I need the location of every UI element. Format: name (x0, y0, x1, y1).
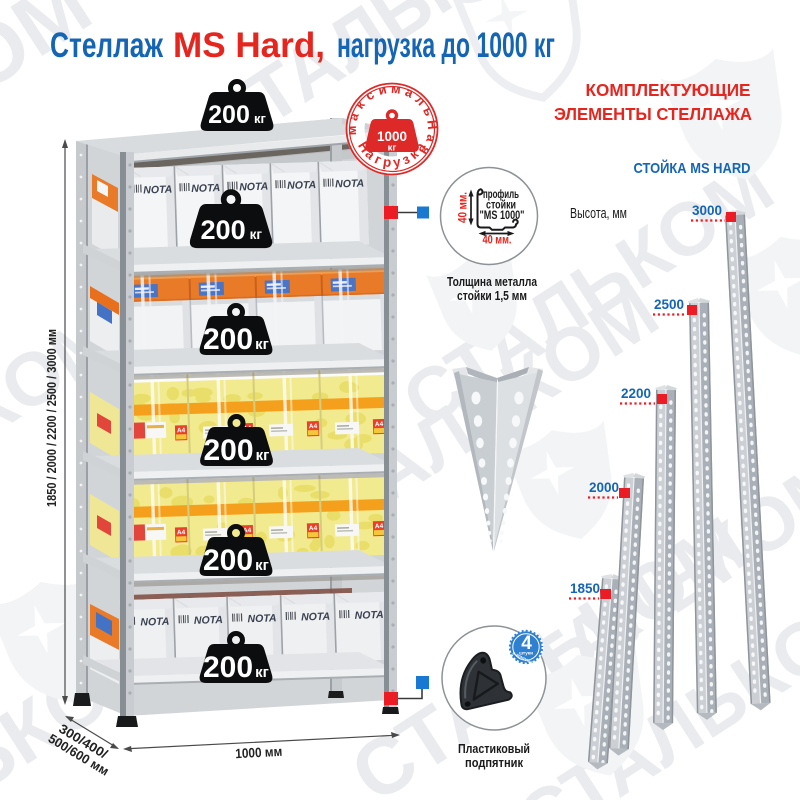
svg-text:NOTA: NOTA (194, 614, 223, 627)
svg-text:2000: 2000 (589, 480, 619, 495)
svg-text:Пластиковый: Пластиковый (458, 741, 530, 756)
svg-text:NOTA: NOTA (191, 182, 220, 195)
svg-text:NOTA: NOTA (247, 612, 276, 625)
svg-text:NOTA: NOTA (355, 609, 384, 622)
svg-text:СТОЙКА MS HARD: СТОЙКА MS HARD (634, 159, 751, 177)
svg-text:Стеллаж: Стеллаж (50, 26, 164, 65)
svg-text:1850 / 2000 / 2200 / 2500 / 30: 1850 / 2000 / 2200 / 2500 / 3000 мм (44, 329, 59, 507)
svg-text:200: 200 (200, 214, 245, 245)
svg-text:стойки 1,5 мм: стойки 1,5 мм (457, 288, 527, 303)
svg-text:кг: кг (255, 336, 269, 353)
svg-text:Высота, мм: Высота, мм (570, 205, 627, 222)
svg-text:2500: 2500 (654, 297, 684, 312)
svg-text:NOTA: NOTA (301, 611, 330, 624)
svg-text:м: м (344, 125, 359, 135)
svg-text:A4: A4 (177, 529, 186, 536)
svg-text:кг: кг (256, 447, 270, 464)
svg-text:40 мм.: 40 мм. (456, 192, 470, 223)
svg-text:"MS 1000": "MS 1000" (480, 210, 525, 222)
svg-text:КОМПЛЕКТУЮЩИЕ: КОМПЛЕКТУЮЩИЕ (586, 80, 751, 100)
svg-text:подпятник: подпятник (465, 755, 523, 770)
svg-text:Н: Н (424, 119, 440, 130)
svg-text:200: 200 (203, 434, 253, 467)
svg-text:A4: A4 (177, 427, 186, 434)
svg-text:ЭЛЕМЕНТЫ СТЕЛЛАЖА: ЭЛЕМЕНТЫ СТЕЛЛАЖА (554, 104, 752, 124)
svg-text:NOTA: NOTA (335, 178, 364, 191)
svg-text:A4: A4 (375, 421, 384, 428)
svg-text:200: 200 (203, 651, 253, 684)
svg-text:200: 200 (203, 544, 253, 577)
svg-text:NOTA: NOTA (143, 184, 172, 197)
svg-text:1000 мм: 1000 мм (235, 744, 283, 761)
svg-text:м: м (391, 81, 402, 97)
svg-text:кг: кг (254, 111, 267, 126)
svg-text:200: 200 (208, 101, 250, 129)
svg-text:кг: кг (255, 664, 269, 681)
svg-text:A4: A4 (375, 523, 384, 530)
svg-text:NOTA: NOTA (239, 181, 268, 194)
svg-text:A4: A4 (309, 423, 318, 430)
svg-text:NOTA: NOTA (287, 179, 316, 192)
svg-text:MS Hard,: MS Hard, (173, 26, 325, 65)
svg-text:A4: A4 (309, 525, 318, 532)
svg-text:Толщина металла: Толщина металла (447, 274, 538, 289)
svg-text:2200: 2200 (621, 386, 651, 401)
svg-text:1850: 1850 (570, 581, 600, 596)
svg-text:200: 200 (203, 323, 253, 356)
svg-text:нагрузка до 1000 кг: нагрузка до 1000 кг (337, 26, 555, 65)
svg-text:40 мм.: 40 мм. (483, 233, 512, 247)
svg-text:3000: 3000 (692, 203, 722, 218)
svg-text:NOTA: NOTA (140, 616, 169, 629)
svg-text:кг: кг (250, 227, 263, 242)
svg-text:кг: кг (388, 143, 397, 154)
svg-text:кг: кг (255, 557, 269, 574)
